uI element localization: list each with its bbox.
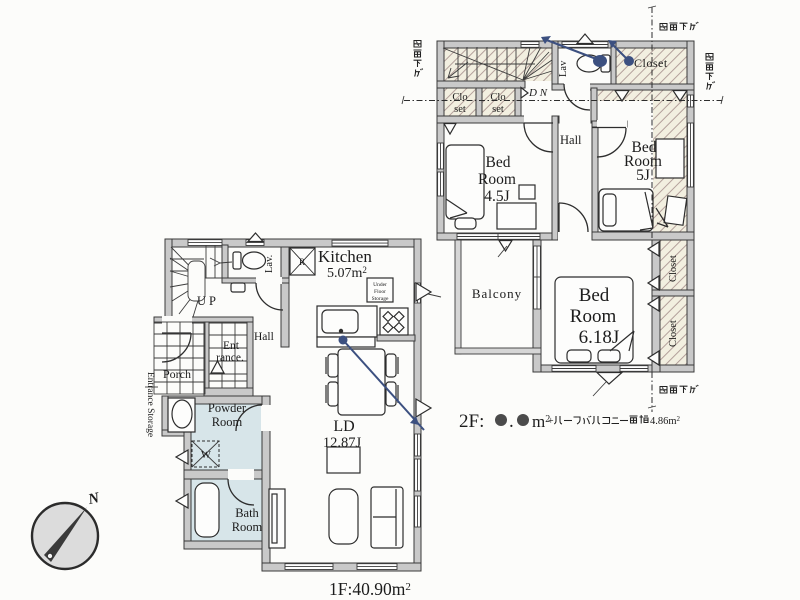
svg-text:5.07m2: 5.07m2 [327,265,367,281]
svg-text:Ent: Ent [223,340,240,352]
svg-text:rance.: rance. [216,352,244,364]
svg-text:Hall: Hall [254,331,274,343]
svg-text:Bath: Bath [235,506,259,520]
svg-text:Floor: Floor [374,289,386,295]
svg-text:Under: Under [373,282,387,288]
svg-text:Room: Room [212,415,243,429]
svg-text:Clo: Clo [490,92,505,103]
svg-text:Hall: Hall [560,133,582,147]
svg-text:.: . [509,411,514,432]
svg-text:Kitchen: Kitchen [318,247,372,266]
svg-text:2F:: 2F: [459,411,484,432]
svg-text:Closet: Closet [668,255,679,282]
svg-text:R: R [299,257,305,267]
svg-text:Bed: Bed [486,154,511,171]
svg-text:Bed: Bed [579,285,610,306]
svg-text:4.5J: 4.5J [484,188,509,205]
svg-text:Room: Room [232,520,263,534]
svg-text:Room: Room [478,171,516,188]
svg-text:5J: 5J [636,167,650,184]
svg-text:UP: UP [197,294,219,308]
svg-text:Closet: Closet [668,320,679,347]
svg-text:Porch: Porch [163,367,191,381]
svg-text:W: W [201,450,211,461]
svg-text:4.86m2: 4.86m2 [650,415,681,427]
svg-text:12.87J: 12.87J [323,435,362,451]
svg-text:Closet: Closet [634,56,668,70]
svg-text:set: set [492,104,504,115]
svg-text:Lav.: Lav. [264,255,275,273]
svg-text:Powder: Powder [208,401,247,415]
svg-text:Entrance Storage: Entrance Storage [145,372,155,437]
svg-text:Clo: Clo [452,92,467,103]
svg-text:6.18J: 6.18J [579,327,620,348]
svg-text:set: set [454,104,466,115]
svg-text:Storage: Storage [372,296,389,302]
svg-text:+: + [548,416,554,427]
svg-text:D N: D N [528,87,548,99]
svg-text:1F:40.90m2: 1F:40.90m2 [329,579,411,599]
svg-text:Room: Room [570,306,617,327]
svg-text:Lav: Lav [558,60,569,77]
svg-text:Balcony: Balcony [472,286,522,301]
svg-text:LD: LD [333,418,354,435]
